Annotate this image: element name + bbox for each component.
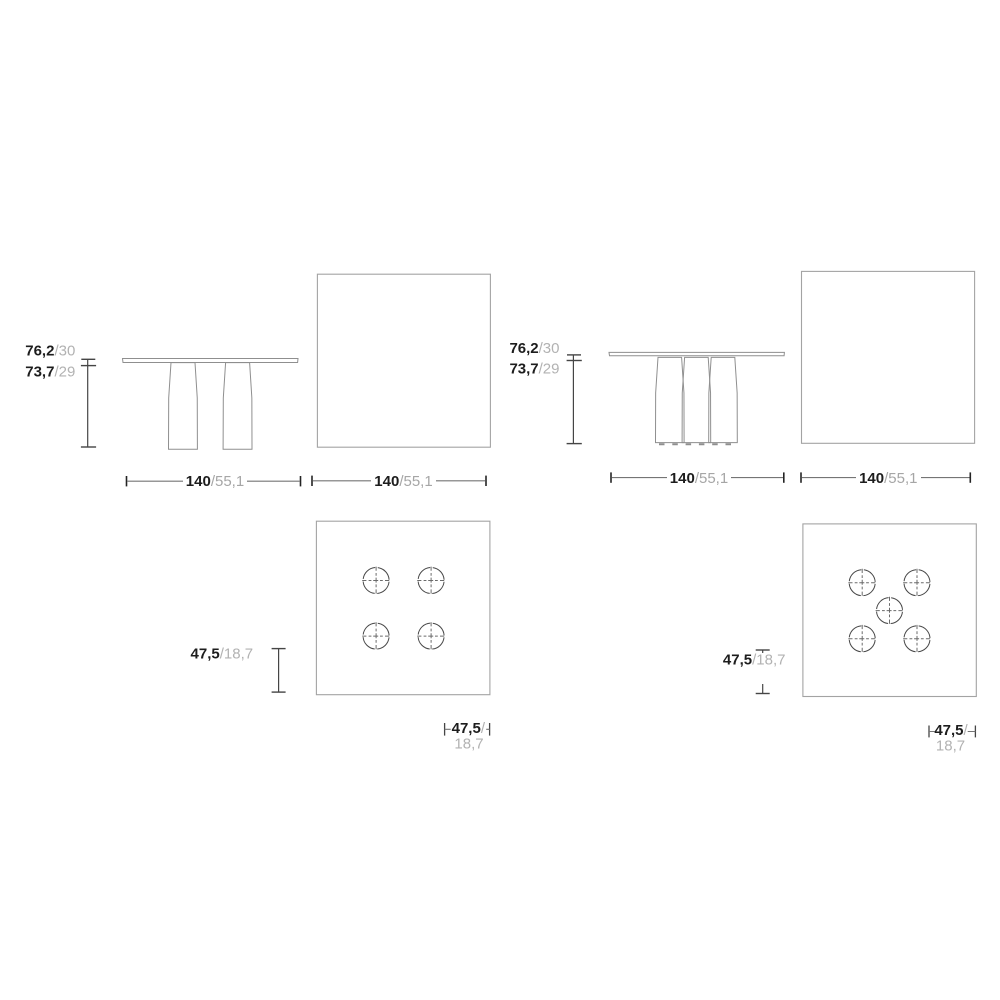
svg-text:18,7: 18,7 [936,737,965,754]
svg-text:76,2/30: 76,2/30 [509,340,559,357]
svg-text:18,7: 18,7 [454,736,483,753]
svg-text:140/55,1: 140/55,1 [374,473,432,490]
svg-text:140/55,1: 140/55,1 [670,470,728,487]
svg-text:73,7/29: 73,7/29 [25,363,75,380]
svg-text:73,7/29: 73,7/29 [509,360,559,377]
svg-text:140/55,1: 140/55,1 [186,473,244,490]
svg-text:76,2/30: 76,2/30 [25,343,75,360]
svg-text:47,5/: 47,5/ [452,720,486,737]
svg-text:140/55,1: 140/55,1 [859,470,917,487]
svg-text:47,5/18,7: 47,5/18,7 [723,652,786,669]
svg-text:47,5/18,7: 47,5/18,7 [191,646,254,663]
